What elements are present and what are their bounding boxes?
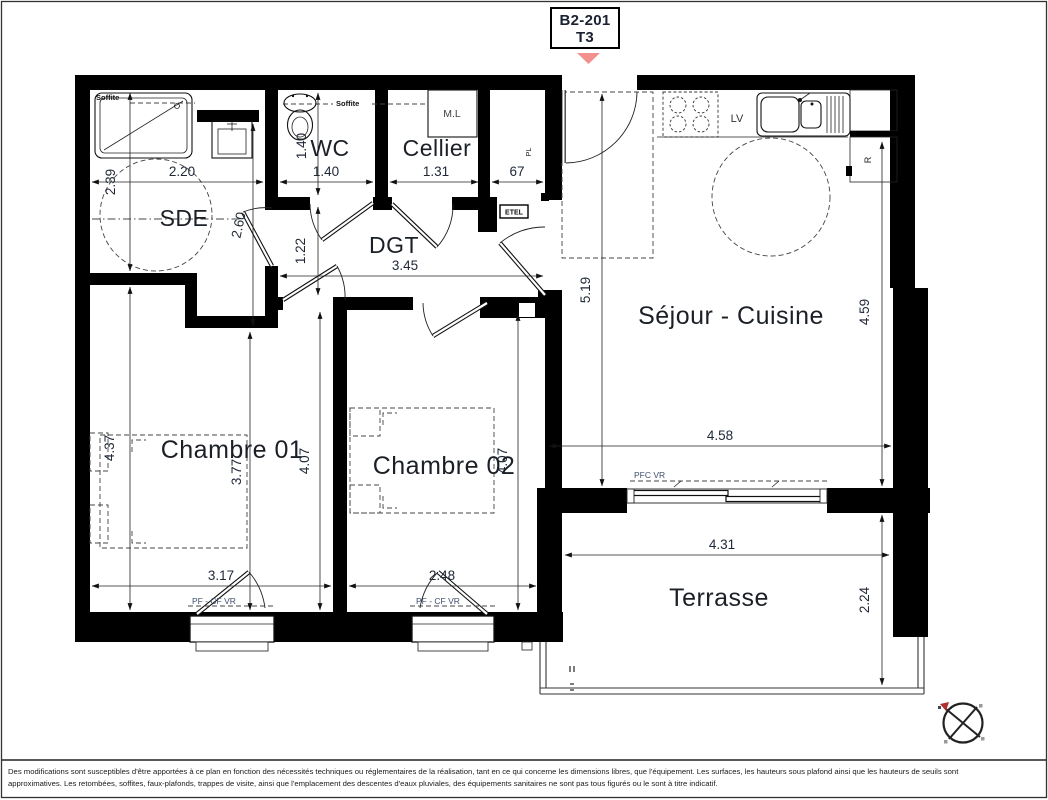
dim-sejour-width: 4.58 bbox=[707, 428, 733, 443]
dim-placard-width: 67 bbox=[509, 164, 524, 179]
chambre01-window bbox=[188, 572, 276, 651]
dim-sde-inner: 2.60 bbox=[229, 211, 249, 240]
washing-machine-label: M.L bbox=[443, 108, 461, 120]
shower-icon bbox=[95, 93, 192, 158]
dim-sejour-depth: 5.19 bbox=[578, 277, 593, 303]
room-label-cellier: Cellier bbox=[403, 135, 472, 161]
dim-ch1-left: 4.37 bbox=[102, 435, 117, 461]
disclaimer: Des modifications sont susceptibles d'êt… bbox=[8, 767, 959, 788]
terrace-railing bbox=[522, 637, 924, 694]
room-label-sejour: Séjour - Cuisine bbox=[638, 302, 824, 330]
page-frame bbox=[2, 2, 1047, 798]
etel-label: ETEL bbox=[505, 210, 524, 217]
room-label-chambre01: Chambre 01 bbox=[161, 436, 304, 464]
sejour-sliding-window bbox=[627, 481, 828, 503]
dim-sde-width: 2.20 bbox=[169, 164, 195, 179]
soffite-wc-label: Soffite bbox=[336, 99, 359, 108]
placard-label: PL bbox=[524, 147, 533, 156]
disclaimer-line-2: approximatives. Les retombées, soffites,… bbox=[8, 779, 718, 788]
wc-door bbox=[310, 203, 373, 240]
unit-type: T3 bbox=[576, 29, 594, 46]
compass-icon bbox=[938, 702, 985, 744]
dim-sejour-depth-right: 4.59 bbox=[857, 299, 872, 325]
unit-id: B2-201 bbox=[560, 12, 611, 29]
entry-zone-dashed bbox=[562, 92, 653, 258]
room-label-dgt: DGT bbox=[369, 232, 419, 258]
soffite-sde-label: Soffite bbox=[96, 93, 119, 102]
unit-title-box: B2-201 T3 bbox=[551, 8, 619, 64]
entry-door bbox=[564, 90, 638, 163]
dim-cellier-width: 1.31 bbox=[423, 164, 449, 179]
kitchen-sink-icon bbox=[757, 93, 850, 136]
dim-wc-depth: 1.40 bbox=[294, 133, 309, 159]
window-ch1-label: PF - CF VR bbox=[192, 596, 236, 606]
chambre02-window bbox=[410, 572, 496, 651]
dim-dgt-width: 3.45 bbox=[392, 258, 418, 273]
disclaimer-line-1: Des modifications sont susceptibles d'êt… bbox=[8, 767, 959, 776]
floor-plan-drawing: B2-201 T3 bbox=[0, 0, 1048, 800]
dim-wc-width: 1.40 bbox=[313, 164, 339, 179]
room-label-terrasse: Terrasse bbox=[669, 584, 769, 612]
washbasin-icon bbox=[212, 121, 252, 158]
window-sejour-label: PFC VR bbox=[634, 470, 665, 480]
dim-terrasse-width: 4.31 bbox=[709, 537, 735, 552]
location-arrow-icon bbox=[577, 53, 600, 64]
chambre02-door bbox=[423, 303, 487, 336]
room-label-wc: WC bbox=[310, 135, 349, 161]
dim-ch2-window: 2.48 bbox=[429, 568, 455, 583]
dim-ch1-window: 3.17 bbox=[208, 568, 234, 583]
chambre01-door bbox=[283, 266, 345, 300]
fridge-niche bbox=[846, 90, 897, 182]
dim-sde-depth: 2.39 bbox=[103, 169, 118, 195]
hob-icon bbox=[663, 92, 718, 137]
sejour-door bbox=[500, 227, 545, 295]
dishwasher-label: LV bbox=[731, 113, 744, 125]
room-label-chambre02: Chambre 02 bbox=[373, 452, 516, 480]
room-label-sde: SDE bbox=[160, 205, 209, 231]
dim-dgt-depth: 1.22 bbox=[293, 238, 308, 264]
dim-terrasse-depth: 2.24 bbox=[857, 586, 872, 613]
walls bbox=[75, 75, 930, 642]
fridge-label: R bbox=[863, 156, 873, 163]
window-ch2-label: PF - CF VR bbox=[416, 596, 460, 606]
floor-plan-page: B2-201 T3 bbox=[0, 0, 1048, 800]
